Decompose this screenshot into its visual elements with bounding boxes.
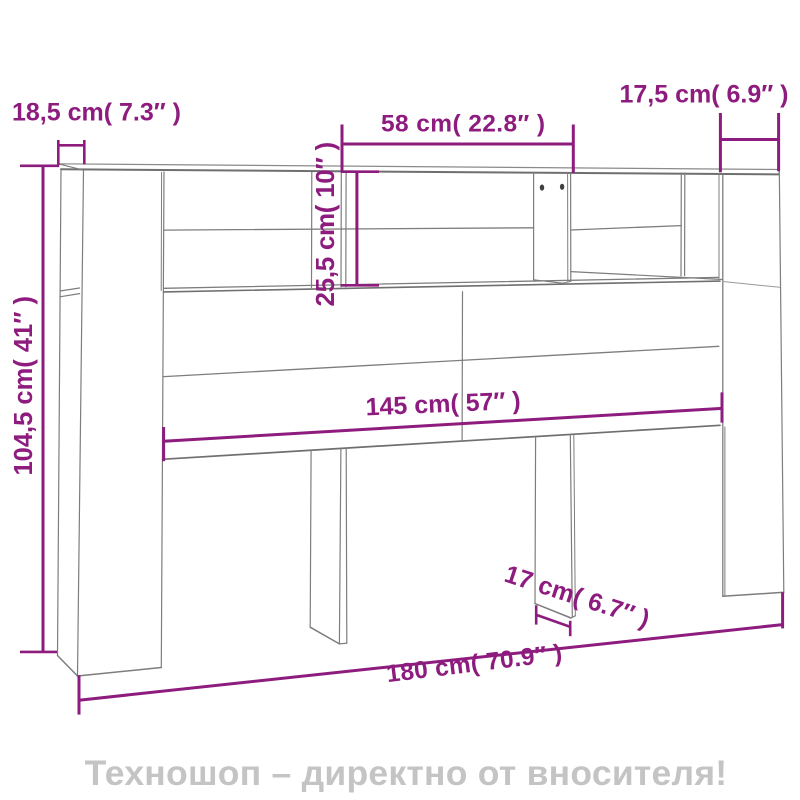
svg-text:17,5 cm( 6.9″ ): 17,5 cm( 6.9″ ) [620, 80, 789, 108]
svg-text:Техношоп – директно от вносите: Техношоп – директно от вносителя! [85, 753, 728, 793]
svg-text:58 cm( 22.8″ ): 58 cm( 22.8″ ) [381, 111, 545, 138]
svg-text:18,5 cm( 7.3″ ): 18,5 cm( 7.3″ ) [12, 99, 181, 127]
svg-text:25,5 cm( 10″ ): 25,5 cm( 10″ ) [310, 142, 340, 306]
svg-text:104,5 cm( 41″ ): 104,5 cm( 41″ ) [10, 296, 38, 475]
